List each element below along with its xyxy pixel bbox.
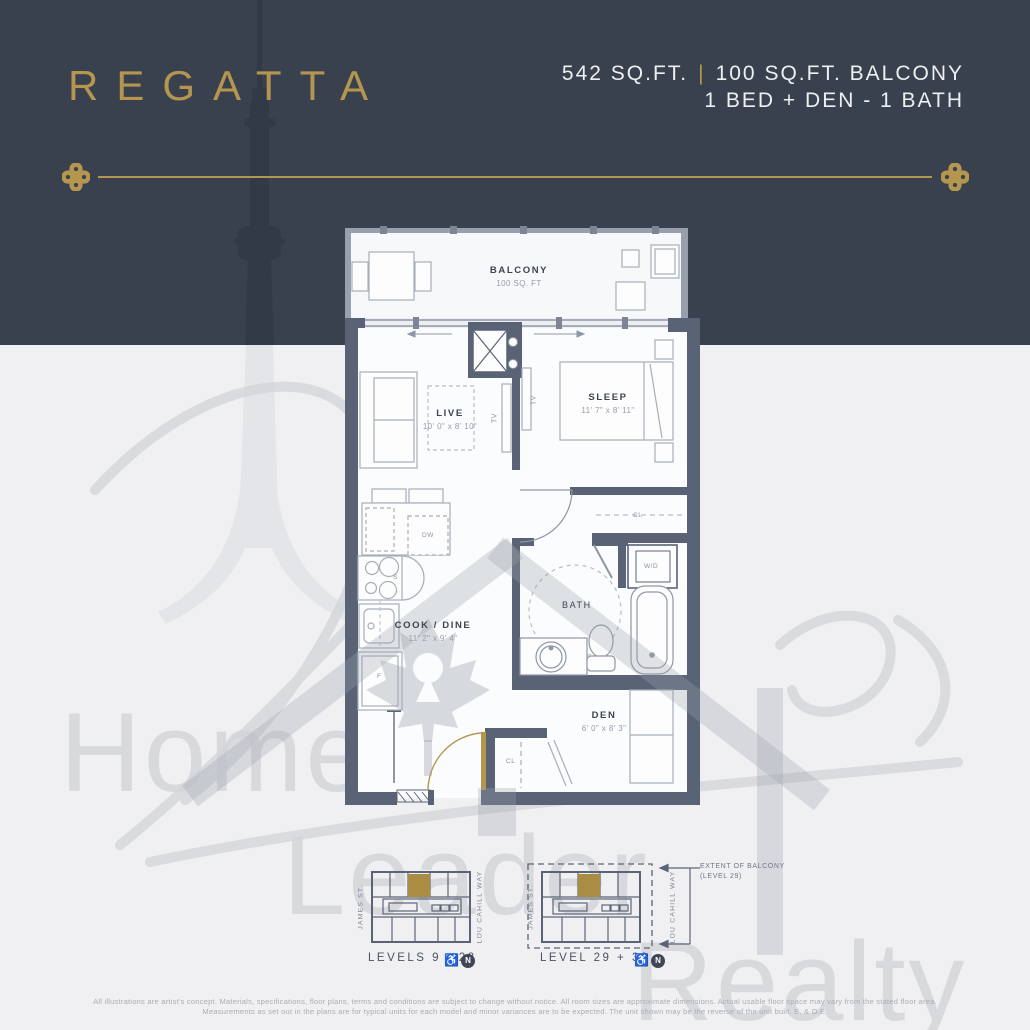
watermark-word-home: Home [60, 697, 371, 809]
header-band: REGATTA 542 SQ.FT.|100 SQ.FT. BALCONY 1 … [0, 0, 1030, 345]
keyhole-cutout [413, 653, 443, 702]
cook-dine-label: COOK / DINE 11' 2" x 9' 4" [395, 620, 472, 643]
disclaimer-line1: All illustrations are artist's concept. … [0, 997, 1030, 1007]
balcony-label: BALCONY 100 SQ. FT [490, 265, 548, 288]
quatrefoil-icon-right [941, 163, 969, 191]
watermark-word-leader: Leader [283, 820, 650, 932]
extent-line1: EXTENT OF BALCONY [700, 862, 785, 872]
stove-label: S [393, 574, 398, 581]
accessible-icon-1: ♿ [444, 953, 459, 967]
disclaimer-line2: Measurements as set out in the plans are… [0, 1007, 1030, 1017]
quatrefoil-icon-left [62, 163, 90, 191]
entry-door [397, 732, 486, 802]
balcony-area: 100 SQ.FT. BALCONY [716, 62, 964, 85]
unit-area: 542 SQ.FT. [562, 62, 688, 85]
den-details [521, 690, 673, 788]
sleep-label: SLEEP 11' 7" x 8' 11" [581, 392, 634, 415]
spec-line1: 542 SQ.FT.|100 SQ.FT. BALCONY [562, 60, 964, 87]
spec-divider: | [688, 62, 715, 85]
disclaimer: All illustrations are artist's concept. … [0, 997, 1030, 1016]
gold-divider-line [98, 176, 932, 178]
live-label: LIVE 10' 0" x 8' 10" [423, 408, 477, 431]
spec-line2: 1 BED + DEN - 1 BATH [562, 87, 964, 114]
street-lou-cahill-1: LOU CAHILL WAY [477, 871, 484, 944]
den-label: DEN 6' 0" x 8' 3" [582, 710, 627, 733]
street-lou-cahill-2: LOU CAHILL WAY [670, 871, 677, 944]
street-james-1: JAMES ST. [358, 884, 365, 929]
street-james-2: JAMES ST. [528, 884, 535, 929]
tv-label-live: TV [492, 413, 499, 423]
walls [345, 318, 700, 805]
cl-label-den: CL [506, 758, 515, 765]
tv-label-sleep: TV [531, 395, 538, 405]
north-icon-2: N [651, 954, 665, 968]
page-title: REGATTA [68, 62, 386, 110]
fridge-label: F [377, 673, 381, 680]
sleep-door [520, 490, 572, 542]
wd-label: W/D [644, 563, 658, 570]
unit-specs: 542 SQ.FT.|100 SQ.FT. BALCONY 1 BED + DE… [562, 60, 964, 114]
north-icon-1: N [461, 954, 475, 968]
bath-label: BATH [562, 600, 592, 610]
cn-tower-dark-icon [0, 0, 1030, 345]
extent-of-balcony-note: EXTENT OF BALCONY (LEVEL 29) [700, 862, 785, 882]
cn-tower-light-icon [158, 345, 359, 624]
cl-label-sleep: CL [633, 512, 642, 519]
extent-line2: (LEVEL 29) [700, 872, 785, 882]
accessible-icon-2: ♿ [634, 953, 649, 967]
unit-floor [352, 318, 694, 798]
dw-label: DW [422, 532, 434, 539]
